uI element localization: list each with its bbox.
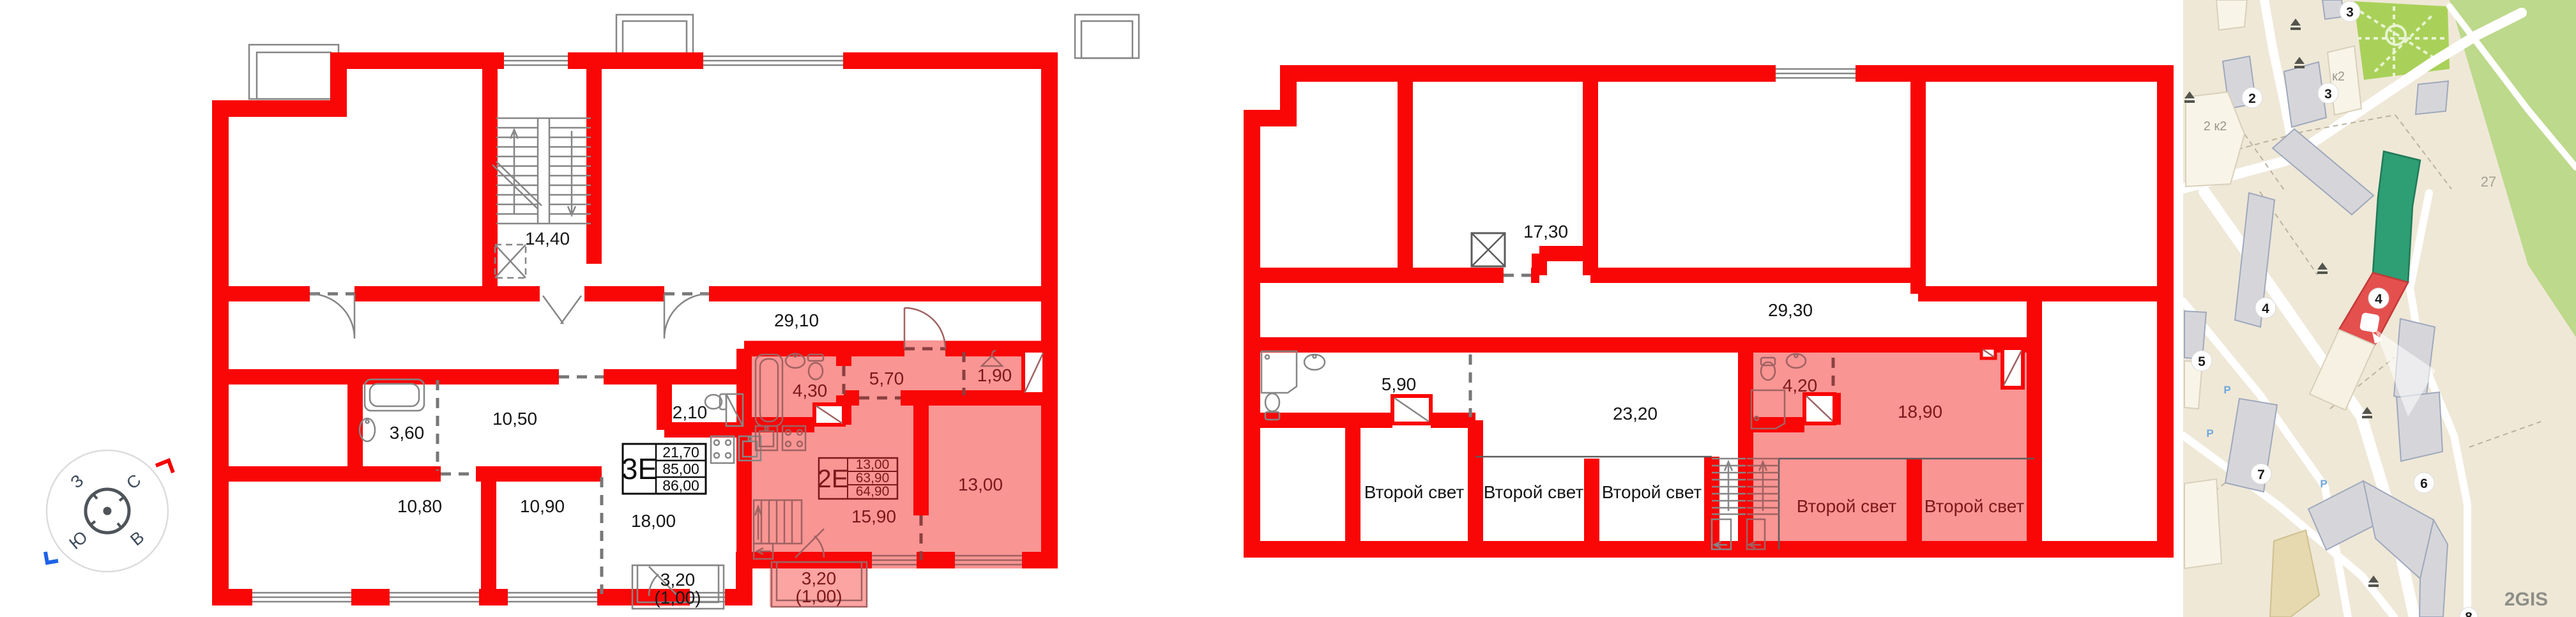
- building-label: 2 к2: [2204, 119, 2227, 133]
- building-badge[interactable]: 2: [2242, 88, 2262, 108]
- living-area: 13,00: [856, 457, 890, 472]
- room-area-label: 17,30: [1523, 222, 1568, 241]
- building-badge[interactable]: 3: [2318, 83, 2338, 103]
- svg-text:3: 3: [2324, 87, 2332, 102]
- stove-icon: [711, 436, 734, 463]
- svg-text:3: 3: [2346, 5, 2354, 20]
- void-label: Второй свет: [1484, 482, 1584, 502]
- toilet-icon: [705, 394, 726, 409]
- apartment-2e-upper-region[interactable]: [1746, 340, 2034, 549]
- room-area-label: 4,20: [1783, 376, 1818, 395]
- site-map[interactable]: P P P 2 к2 к2 27 3 2 3 4 4 5 7 6 8 2GIS: [2183, 0, 2576, 617]
- svg-text:8: 8: [2465, 610, 2473, 617]
- room-area-label: 29,10: [774, 310, 819, 330]
- duct-shaft-icon: [814, 404, 844, 425]
- room-area-label: 14,40: [525, 229, 570, 248]
- area: 85,00: [662, 461, 699, 477]
- void-label: Второй свет: [1602, 482, 1702, 502]
- room-area-label: 18,90: [1898, 402, 1942, 422]
- room-area-label: 3,60: [390, 423, 425, 443]
- map-watermark: 2GIS: [2504, 589, 2548, 610]
- room-area-label: 1,90: [977, 365, 1012, 385]
- area: 63,90: [856, 471, 890, 485]
- total-area: 86,00: [662, 477, 699, 494]
- room-area-label: 10,50: [492, 409, 537, 429]
- parking-label: P: [2320, 478, 2327, 490]
- svg-text:2: 2: [2248, 91, 2256, 106]
- building-badge[interactable]: 3: [2340, 1, 2360, 22]
- total-area: 64,90: [856, 484, 890, 499]
- room-area-label: 5,70: [869, 369, 904, 388]
- vent-shaft-icon: [1472, 233, 1505, 266]
- compass-blue-corner-marker-icon: [45, 552, 58, 563]
- apartment-code: 2Е: [818, 465, 849, 493]
- void-label: Второй свет: [1797, 496, 1897, 516]
- room-area-label: 18,00: [631, 511, 676, 531]
- svg-text:5: 5: [2198, 354, 2206, 369]
- sink-icon: [1304, 354, 1325, 370]
- floor-plan-second-level: 17,30 29,30 5,90 23,20 Второй свет Второ…: [1201, 10, 2178, 616]
- balcony-coef-label: (1,00): [795, 586, 842, 606]
- map-park: [2354, 1, 2450, 80]
- elevator-shaft-icon: [495, 245, 526, 278]
- room-area-label: 13,00: [958, 475, 1003, 494]
- room-area-label: 29,30: [1768, 300, 1813, 320]
- window-icon: [1776, 65, 1856, 82]
- building-badge[interactable]: 4: [2255, 298, 2276, 318]
- svg-text:7: 7: [2257, 468, 2265, 482]
- room-area-label: 10,80: [397, 496, 442, 516]
- bathtub-icon: [365, 379, 424, 411]
- room-area-label: 4,30: [793, 381, 828, 400]
- balcony-area-label: 3,20: [802, 568, 837, 588]
- duct-shaft-icon: [1804, 394, 1834, 423]
- duct-shaft-icon: [1392, 396, 1431, 423]
- svg-text:4: 4: [2262, 301, 2269, 316]
- staircase-icon: [492, 118, 591, 224]
- room-area-label: 5,90: [1382, 374, 1417, 394]
- building-badge[interactable]: 4: [2368, 288, 2389, 308]
- balcony-area-label: 3,20: [660, 570, 696, 590]
- room-area-label: 10,90: [520, 496, 565, 516]
- building-badge[interactable]: 5: [2191, 351, 2212, 371]
- svg-text:6: 6: [2420, 476, 2428, 491]
- apartment-3e-table: 3Е 21,70 85,00 86,00: [621, 444, 706, 494]
- shower-icon: [1261, 351, 1297, 393]
- entrance-door-icon: [1023, 351, 1044, 394]
- building-badge[interactable]: 7: [2251, 464, 2271, 484]
- parking-label: P: [2223, 384, 2230, 396]
- floor-plan-first-level: 3Е 21,70 85,00 86,00 2Е 13,00 63,90 64,9…: [67, 10, 1153, 616]
- room-area-label: 15,90: [851, 507, 896, 526]
- svg-text:4: 4: [2375, 292, 2382, 307]
- building-label: к2: [2332, 70, 2345, 84]
- room-area-label: 2,10: [673, 402, 708, 422]
- interior-walls: [1252, 73, 2165, 549]
- void-label: Второй свет: [1364, 482, 1465, 502]
- void-label: Второй свет: [1924, 496, 2025, 516]
- parking-label: P: [2206, 427, 2213, 439]
- balcony-coef-label: (1,00): [654, 588, 701, 607]
- room-area-label: 23,20: [1613, 404, 1658, 423]
- building-badge[interactable]: 6: [2414, 473, 2434, 493]
- parcel-number-label: 27: [2481, 174, 2496, 190]
- apartment-code: 3Е: [621, 452, 657, 485]
- living-area: 21,70: [662, 444, 699, 461]
